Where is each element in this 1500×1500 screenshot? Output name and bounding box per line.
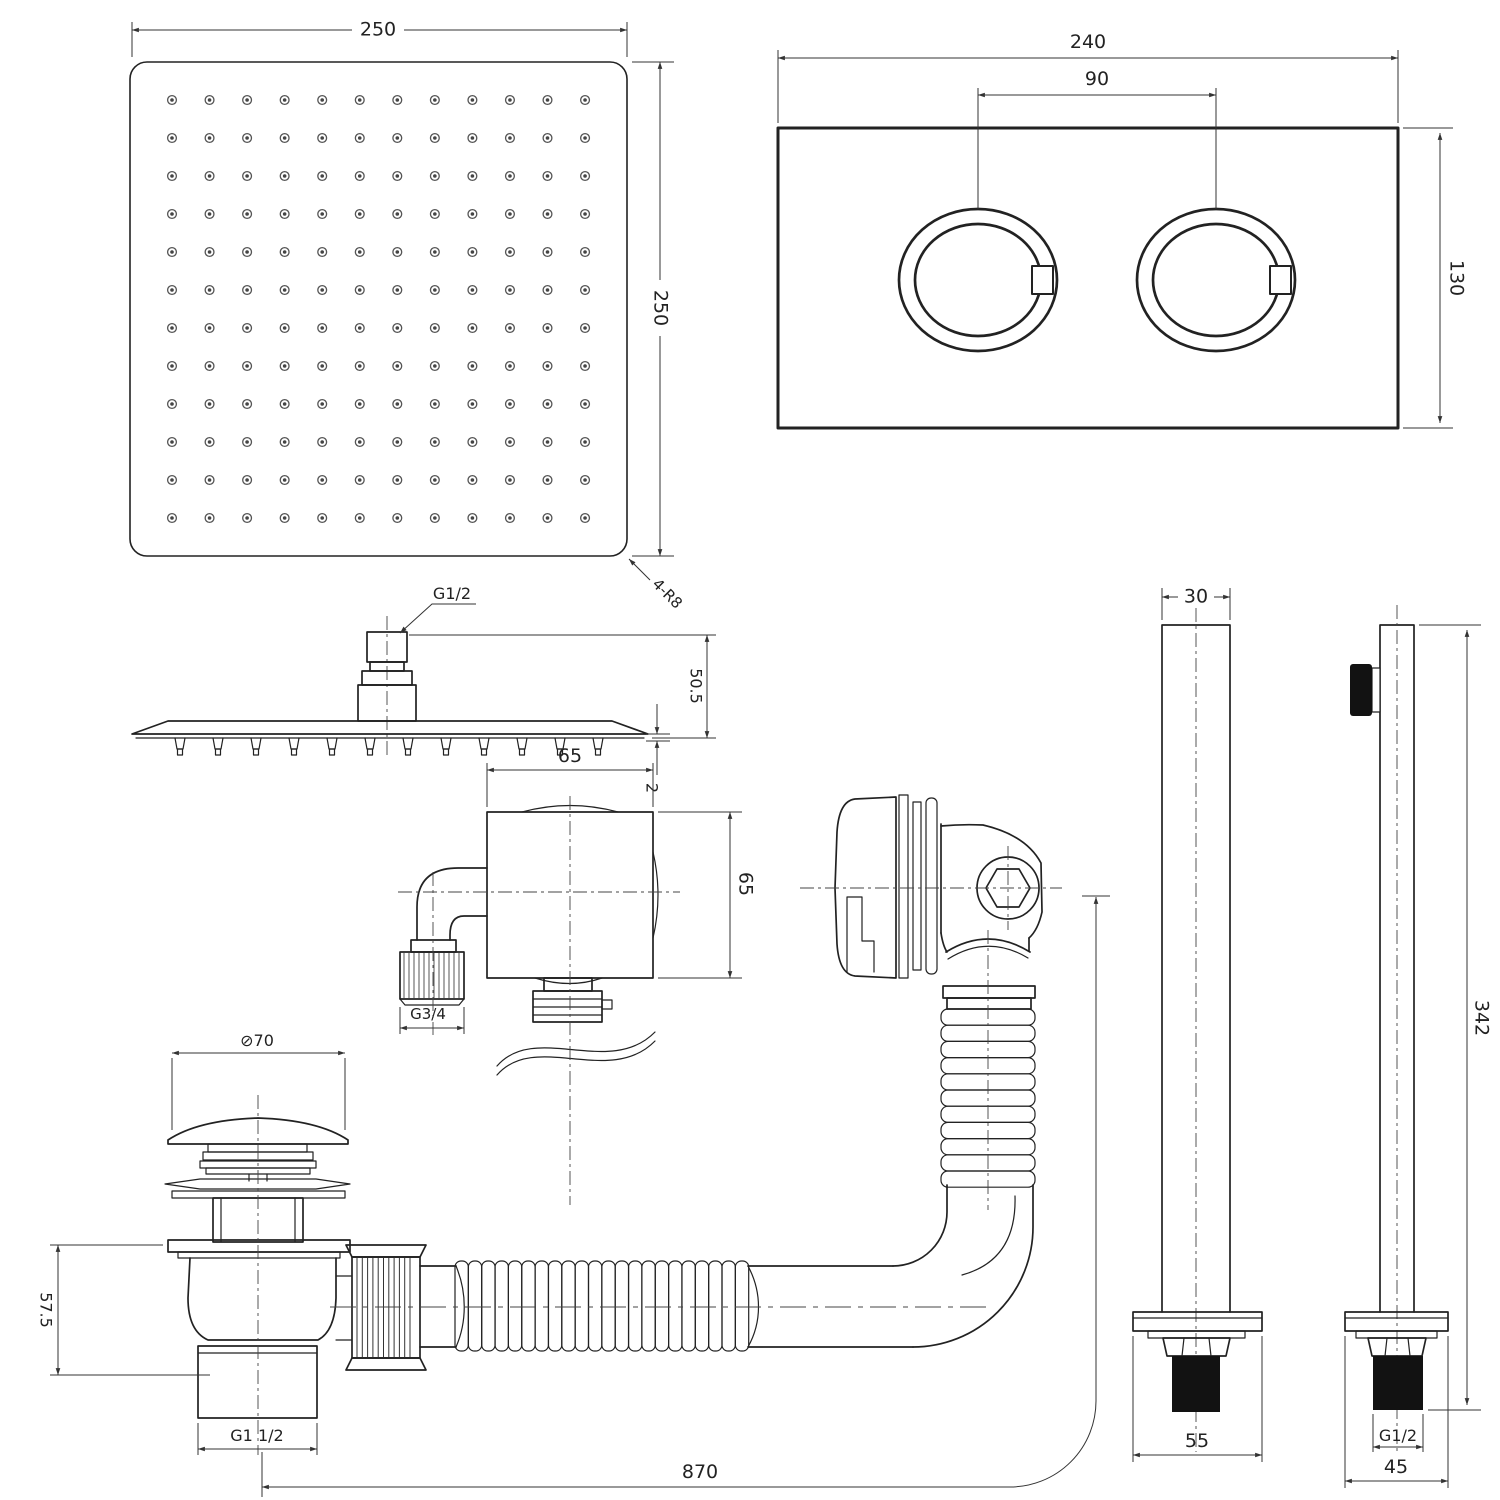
dim-arm-right-base-width: 45 [1384, 1456, 1408, 1478]
dim-hose-length: 870 [682, 1461, 718, 1483]
dim-arm-thread: G1/2 [1379, 1426, 1417, 1445]
dim-corner-radius: 4-R8 [649, 575, 686, 612]
dim-outlet-height: 65 [735, 872, 757, 896]
drain-tailpiece [198, 1346, 317, 1418]
dim-drain-height: 57.5 [37, 1292, 56, 1328]
knob-right [1137, 209, 1295, 351]
outlet-elbow-pipe [417, 868, 487, 940]
arm-right-view: 342 G1/2 45 [1345, 605, 1493, 1488]
knob-left [899, 209, 1057, 351]
arm-right-thread [1373, 1356, 1423, 1410]
shower-head-plate [130, 62, 627, 556]
dim-head-height: 250 [650, 290, 672, 326]
arm-left-view: 30 55 [1133, 586, 1262, 1463]
dim-arm-width: 30 [1184, 586, 1208, 608]
control-plate [778, 128, 1398, 428]
arm-right-connector [1350, 664, 1372, 716]
technical-drawing-page: 250 250 4-R8 240 90 [0, 0, 1500, 1500]
dim-head-width: 250 [360, 19, 396, 41]
drain-body [188, 1258, 336, 1340]
dim-knob-spacing: 90 [1085, 68, 1109, 90]
dim-plate-height: 130 [1446, 260, 1468, 296]
dim-arm-length: 342 [1471, 1000, 1493, 1036]
overflow-cap [835, 797, 896, 978]
dim-plate-thickness: 2 [643, 783, 662, 793]
dim-drain-thread: G1 1/2 [230, 1426, 283, 1445]
hose-ribs [455, 1261, 749, 1351]
nozzle-grid [168, 96, 590, 523]
dim-outlet-width: 65 [558, 745, 582, 767]
overflow-fitting-view [800, 795, 1062, 1347]
shower-head-side-view: G1/2 50.5 2 [132, 584, 716, 793]
arm-left-thread [1172, 1356, 1220, 1412]
dim-outlet-thread: G3/4 [410, 1005, 446, 1023]
dim-plate-width: 240 [1070, 31, 1106, 53]
dim-head-side-height: 50.5 [687, 668, 706, 704]
dim-head-thread: G1/2 [433, 584, 471, 603]
shower-head-face-view: 250 250 4-R8 [130, 19, 686, 613]
head-plate-side [132, 721, 648, 734]
drain-waste-view: ⊘70 57.5 G1 1/2 [37, 1031, 427, 1455]
wall-outlet-view: 65 65 G3/4 [398, 745, 757, 1205]
technical-drawing: 250 250 4-R8 240 90 [0, 0, 1500, 1500]
side-nozzles [175, 738, 603, 755]
dim-drain-diameter: ⊘70 [240, 1031, 274, 1050]
control-plate-view: 240 90 130 [778, 31, 1468, 428]
dim-arm-base-width: 55 [1185, 1430, 1209, 1452]
